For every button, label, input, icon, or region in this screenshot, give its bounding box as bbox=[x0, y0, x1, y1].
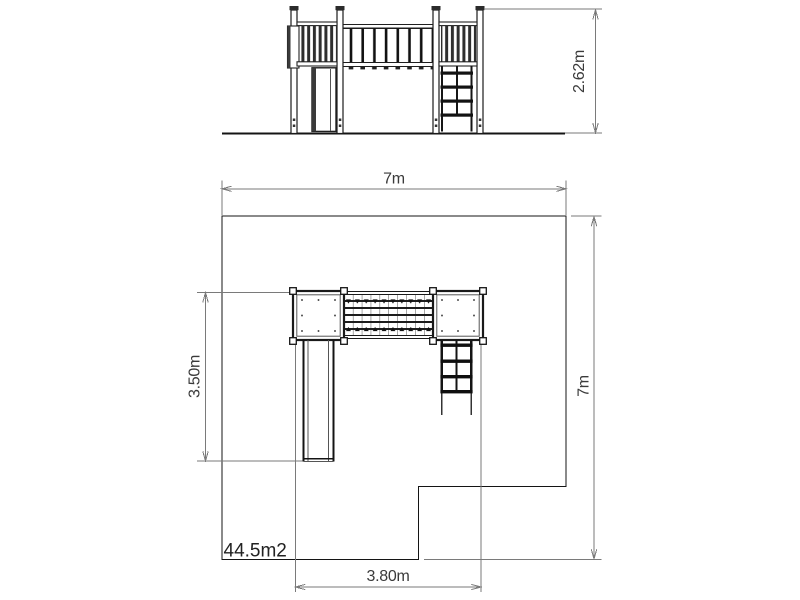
dimension-structure-width: 3.80m bbox=[296, 345, 482, 592]
railing-top-rail bbox=[439, 22, 477, 26]
plan-structure bbox=[290, 288, 487, 462]
plan-slide bbox=[304, 340, 334, 462]
plan-bridge-net bbox=[344, 292, 433, 339]
plan-width-label: 7m bbox=[383, 171, 405, 188]
railing-bottom-rail bbox=[297, 62, 337, 66]
net-hooks-top bbox=[344, 299, 433, 304]
railing-slats bbox=[441, 26, 476, 62]
safety-area-boundary bbox=[222, 216, 566, 560]
dimension-plan-depth: 7m bbox=[424, 216, 602, 560]
dimension-elevation-height: 2.62m bbox=[484, 9, 602, 133]
dimension-structure-depth: 3.50m bbox=[187, 293, 304, 461]
climbing-net-elevation bbox=[441, 66, 474, 132]
plan-depth-label: 7m bbox=[576, 375, 593, 397]
railing-bottom-rail bbox=[439, 62, 477, 66]
structure-depth-label: 3.50m bbox=[187, 355, 204, 398]
plan-right-platform bbox=[430, 288, 487, 345]
area-label: 44.5m2 bbox=[224, 541, 287, 562]
railing-slats bbox=[300, 26, 338, 62]
side-panel-edge bbox=[288, 26, 291, 68]
plan-climbing-net bbox=[440, 341, 472, 416]
bridge-feet bbox=[345, 67, 433, 70]
elevation-bridge bbox=[343, 24, 433, 69]
plan-left-platform bbox=[290, 288, 348, 345]
bridge-balusters bbox=[346, 28, 433, 62]
railing-top-rail bbox=[297, 22, 337, 26]
elevation-right-tower bbox=[439, 22, 477, 132]
slide-wall bbox=[312, 68, 316, 132]
plan-view: 7m 7m 3.50m 3.80m 44.5m2 bbox=[187, 171, 602, 593]
dimension-plan-width: 7m bbox=[222, 171, 566, 216]
elevation-view: 2.62m bbox=[222, 6, 602, 134]
elevation-height-label: 2.62m bbox=[571, 50, 588, 93]
net-hooks-bottom bbox=[344, 327, 433, 332]
structure-width-label: 3.80m bbox=[367, 568, 410, 585]
drawing-canvas: 2.62m 7m 7m 3.50m bbox=[0, 0, 800, 600]
playground-technical-drawing: 2.62m 7m 7m 3.50m bbox=[0, 0, 800, 600]
